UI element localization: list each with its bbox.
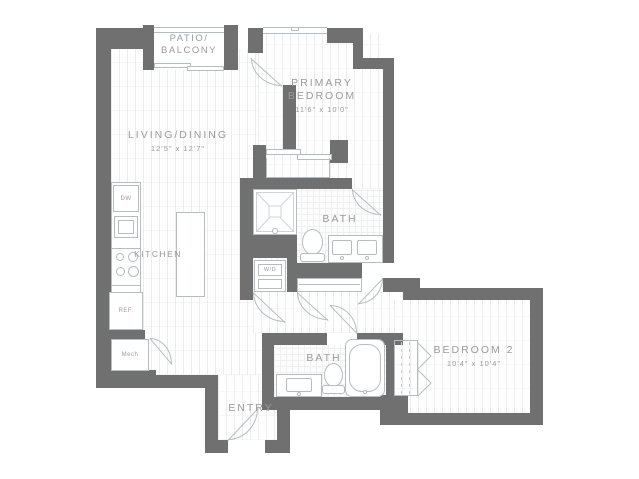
bedroom2-dims: 10'4" x 10'4" (414, 359, 534, 368)
floor-plan: DW REF. Mech W/D (0, 0, 639, 479)
hall-bath-label: BATH (294, 352, 354, 365)
wall-segment (330, 140, 348, 163)
faucet (340, 256, 344, 260)
wall-segment (265, 440, 290, 453)
hall-closet-shelf (299, 284, 360, 285)
toilet-tank (322, 385, 345, 394)
stove-burner (116, 253, 124, 261)
refrigerator-label: REF. (109, 292, 143, 330)
vanity-sink (332, 240, 352, 255)
primary-bedroom-dims: 11'6" x 10'0" (272, 105, 372, 114)
primary-bath-label: BATH (310, 213, 370, 226)
primary-closet-bypass-door (266, 149, 301, 155)
primary-bedroom-label-line2: BEDROOM (272, 90, 372, 103)
primary-closet (266, 158, 330, 178)
vanity-sink (357, 240, 377, 255)
tub-drain (363, 390, 367, 394)
wall-segment (96, 370, 156, 382)
vanity-sink (286, 378, 312, 392)
patio-label-line1: PATIO/ (151, 33, 227, 45)
stove-burner (128, 266, 139, 277)
patio-sliding-door-panel (187, 66, 224, 71)
washer-dryer-label: W/D (258, 264, 282, 276)
living-dining-label: LIVING/DINING (118, 129, 238, 142)
bedroom2-label: BEDROOM 2 (414, 344, 534, 357)
toilet-tank (300, 253, 325, 262)
wall-segment (383, 58, 394, 263)
washer-dryer-drawer (258, 279, 282, 289)
faucet (365, 256, 369, 260)
toilet-bowl (302, 229, 323, 255)
dishwasher-label: DW (113, 185, 139, 212)
wall-segment (205, 440, 228, 453)
closet-rod (401, 342, 402, 394)
living-dining-dims: 12'5" x 12'7" (118, 144, 238, 153)
wall-segment (293, 263, 362, 278)
faucet (297, 392, 301, 396)
primary-bedroom-label-line1: PRIMARY (272, 77, 372, 90)
wall-segment (403, 288, 543, 300)
shower (253, 189, 297, 235)
hall-closet (297, 278, 362, 292)
toilet-bowl (324, 363, 343, 387)
wall-segment (250, 178, 352, 189)
entry-label: ENTRY (221, 402, 281, 415)
kitchen-label: KITCHEN (126, 249, 190, 259)
wall-segment (248, 28, 263, 53)
patio-sliding-door-panel (154, 63, 191, 68)
window-mullion (291, 27, 299, 31)
wall-segment (250, 233, 297, 258)
stove-burner (116, 267, 125, 276)
wall-segment (386, 333, 394, 397)
mechanical-label: Mech (111, 339, 149, 371)
closet-rod (409, 342, 410, 394)
patio-label-line2: BALCONY (151, 45, 227, 57)
wall-segment (405, 413, 543, 425)
kitchen-sink-basin (118, 220, 134, 234)
